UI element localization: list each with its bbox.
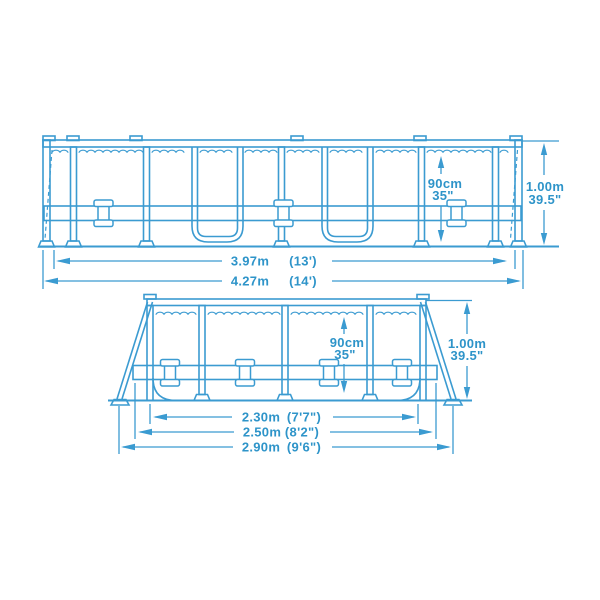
band-connector <box>94 200 113 227</box>
end-width-base-metric: 2.90m <box>242 440 280 455</box>
arrowhead-up <box>341 317 347 329</box>
hidden-slant-leg-right <box>511 150 518 239</box>
arrowhead-down <box>464 387 470 399</box>
side-water-depth-imperial: 35" <box>432 188 454 203</box>
top-rail <box>43 140 522 147</box>
end-water-depth-imperial: 35" <box>334 347 356 362</box>
support-band <box>133 366 437 380</box>
arrowhead-right <box>507 278 521 284</box>
band-connector <box>236 360 255 387</box>
band-connector <box>447 200 466 227</box>
arrowhead-right <box>437 444 451 450</box>
arrowhead-up <box>464 302 470 314</box>
arrowhead-right <box>419 429 433 435</box>
side-view-length-dimensions: 3.97m (13') 4.27m (14') <box>43 250 523 289</box>
pool-wall-right <box>515 140 522 241</box>
end-width-mid-metric: 2.50m <box>243 425 281 440</box>
top-rail <box>147 299 426 306</box>
slant-legs <box>111 302 462 405</box>
band-connector <box>320 360 339 387</box>
pool-wall-left <box>147 306 153 401</box>
pool-wall-left <box>43 140 50 241</box>
end-view-drawing: 90cm 35" 1.00m 39.5" 2.30m (7'7") <box>108 295 486 455</box>
arrowhead-up <box>541 143 547 155</box>
diagram-canvas: 90cm 35" 1.00m 39.5" 3.97m (13') <box>0 0 600 600</box>
arrowhead-right <box>493 258 507 264</box>
side-height-imperial: 39.5" <box>529 192 562 207</box>
slant-leg-left <box>122 302 153 399</box>
hidden-slant-leg-left <box>45 150 52 239</box>
end-width-top-imperial: (7'7") <box>287 410 321 425</box>
arrowhead-down <box>341 381 347 393</box>
end-width-mid-imperial: (8'2") <box>285 425 319 440</box>
frame-leg <box>144 147 150 241</box>
arrowhead-down <box>438 230 444 242</box>
side-length-inner-metric: 3.97m <box>231 254 269 269</box>
slant-leg-left <box>117 302 148 399</box>
end-width-base-imperial: (9'6") <box>287 440 321 455</box>
u-brace <box>192 147 243 242</box>
pool-dimension-diagram: 90cm 35" 1.00m 39.5" 3.97m (13') <box>0 0 600 600</box>
water-line <box>156 312 416 315</box>
frame-leg <box>199 306 205 395</box>
band-connector <box>161 360 180 387</box>
frame-leg <box>493 147 499 241</box>
arrowhead-right <box>402 414 416 420</box>
side-length-outer-imperial: (14') <box>289 274 317 289</box>
u-brace <box>322 147 373 242</box>
pool-wall-right <box>420 306 426 401</box>
side-view-height-dimension: 1.00m 39.5" <box>526 143 564 245</box>
side-length-outer-metric: 4.27m <box>231 274 269 289</box>
frame-leg <box>282 306 288 395</box>
arrowhead-down <box>541 233 547 245</box>
band-connector <box>393 360 412 387</box>
frame-leg <box>419 147 425 241</box>
end-width-top-metric: 2.30m <box>242 410 280 425</box>
frame-leg <box>367 306 373 395</box>
side-length-inner-imperial: (13') <box>289 254 317 269</box>
water-line <box>52 150 508 153</box>
end-height-imperial: 39.5" <box>451 348 484 363</box>
side-view-water-depth-dimension: 90cm 35" <box>428 156 462 242</box>
side-view-drawing: 90cm 35" 1.00m 39.5" 3.97m (13') <box>39 136 565 289</box>
end-view-height-dimension: 1.00m 39.5" <box>448 302 486 399</box>
band-connector <box>274 200 293 227</box>
frame-leg <box>71 147 77 241</box>
